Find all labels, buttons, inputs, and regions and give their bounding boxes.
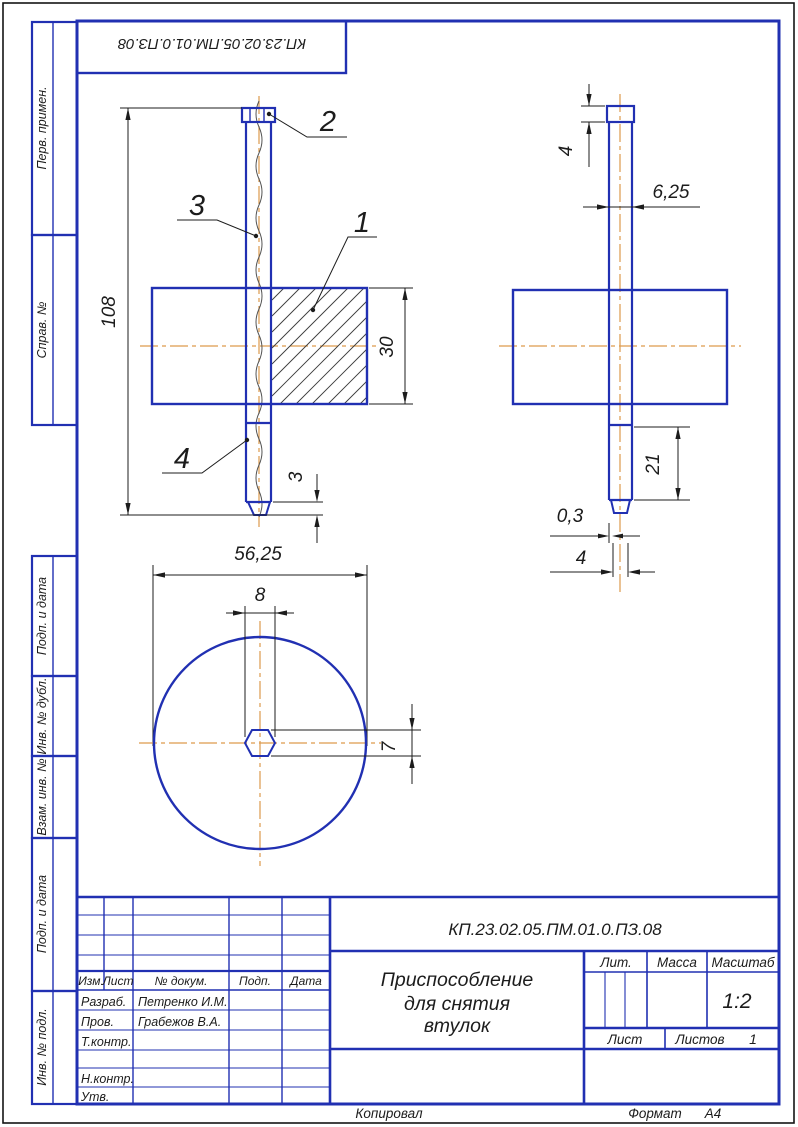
format-label: Формат — [628, 1106, 682, 1121]
svg-text:2: 2 — [319, 106, 336, 138]
svg-text:4: 4 — [556, 146, 577, 157]
svg-text:56,25: 56,25 — [234, 544, 282, 565]
row-utv-label: Утв. — [80, 1090, 109, 1104]
mass-label: Масса — [657, 955, 697, 970]
row-tkontr-label: Т.контр. — [81, 1035, 131, 1049]
margin-label-inv-podl: Инв. № подл. — [35, 1008, 49, 1086]
part-title-line3: втулок — [424, 1015, 491, 1037]
margin-label-inv-dubl: Инв. № дубл. — [35, 678, 49, 755]
svg-text:1: 1 — [354, 207, 370, 239]
svg-text:7: 7 — [379, 740, 400, 752]
sheet-label: Лист — [607, 1032, 643, 1047]
row-nkontr-label: Н.контр. — [81, 1072, 134, 1086]
scale-value: 1:2 — [722, 990, 752, 1013]
row-razrab-name: Петренко И.М. — [138, 995, 228, 1009]
scale-label: Масштаб — [711, 955, 774, 970]
titleblock-designation: КП.23.02.05.ПМ.01.0.ПЗ.08 — [448, 920, 662, 939]
svg-text:3: 3 — [286, 471, 307, 482]
col-date: Дата — [288, 974, 322, 988]
copied-label: Копировал — [355, 1106, 423, 1121]
col-doc: № докум. — [155, 974, 208, 988]
svg-text:8: 8 — [255, 585, 266, 606]
col-sign: Подп. — [239, 974, 271, 988]
top-stamp-designation: КП.23.02.05.ПМ.01.0.ПЗ.08 — [117, 35, 306, 52]
sheets-label: Листов — [674, 1032, 724, 1047]
col-izm: Изм. — [78, 974, 104, 988]
svg-text:4: 4 — [174, 443, 190, 475]
svg-text:30: 30 — [377, 336, 398, 358]
margin-label-podp-data-1: Подп. и дата — [35, 577, 49, 655]
drawing-sheet-page: КП.23.02.05.ПМ.01.0.ПЗ.08 Перв. примен. … — [0, 0, 798, 1127]
engineering-drawing: КП.23.02.05.ПМ.01.0.ПЗ.08 Перв. примен. … — [0, 0, 798, 1127]
part-title-line1: Приспособление — [381, 969, 534, 991]
row-prov-name: Грабежов В.А. — [138, 1015, 221, 1029]
margin-label-podp-data-2: Подп. и дата — [35, 875, 49, 953]
row-prov-label: Пров. — [81, 1015, 114, 1029]
svg-text:4: 4 — [576, 548, 587, 569]
svg-text:108: 108 — [99, 296, 120, 328]
svg-text:0,3: 0,3 — [557, 506, 584, 527]
svg-text:3: 3 — [189, 190, 205, 222]
svg-text:6,25: 6,25 — [653, 182, 690, 203]
lit-label: Лит. — [599, 955, 632, 970]
sheets-value: 1 — [749, 1031, 757, 1047]
margin-label-sprav-no: Справ. № — [35, 301, 49, 358]
col-list: Лист — [102, 974, 134, 988]
svg-text:21: 21 — [643, 453, 664, 475]
margin-label-vzam-inv: Взам. инв. № — [35, 758, 49, 836]
part-title-line2: для снятия — [404, 993, 511, 1015]
margin-label-perv-primen: Перв. примен. — [35, 86, 49, 169]
row-razrab-label: Разраб. — [81, 995, 126, 1009]
format-value: А4 — [704, 1106, 722, 1121]
